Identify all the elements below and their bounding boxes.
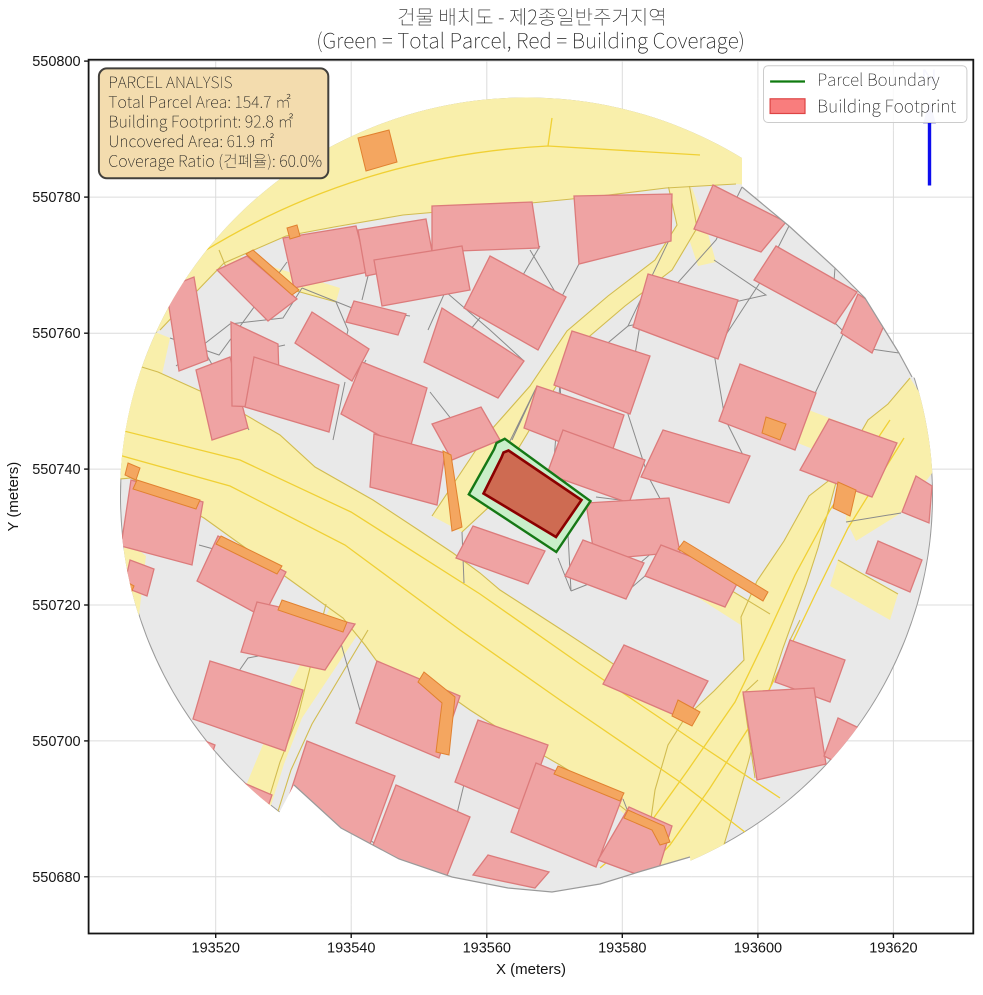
svg-text:193540: 193540 <box>327 941 375 957</box>
svg-text:193520: 193520 <box>192 941 240 957</box>
svg-text:193560: 193560 <box>463 941 511 957</box>
svg-text:550700: 550700 <box>32 734 80 750</box>
svg-text:193580: 193580 <box>598 941 646 957</box>
svg-text:Y (meters): Y (meters) <box>5 462 22 532</box>
svg-text:550800: 550800 <box>32 54 80 70</box>
svg-text:550680: 550680 <box>32 870 80 886</box>
svg-text:550720: 550720 <box>32 598 80 614</box>
svg-text:550760: 550760 <box>32 326 80 342</box>
svg-text:550740: 550740 <box>32 462 80 478</box>
svg-text:X (meters): X (meters) <box>496 961 566 978</box>
svg-text:550780: 550780 <box>32 190 80 206</box>
svg-text:193620: 193620 <box>869 941 917 957</box>
svg-text:193600: 193600 <box>734 941 782 957</box>
